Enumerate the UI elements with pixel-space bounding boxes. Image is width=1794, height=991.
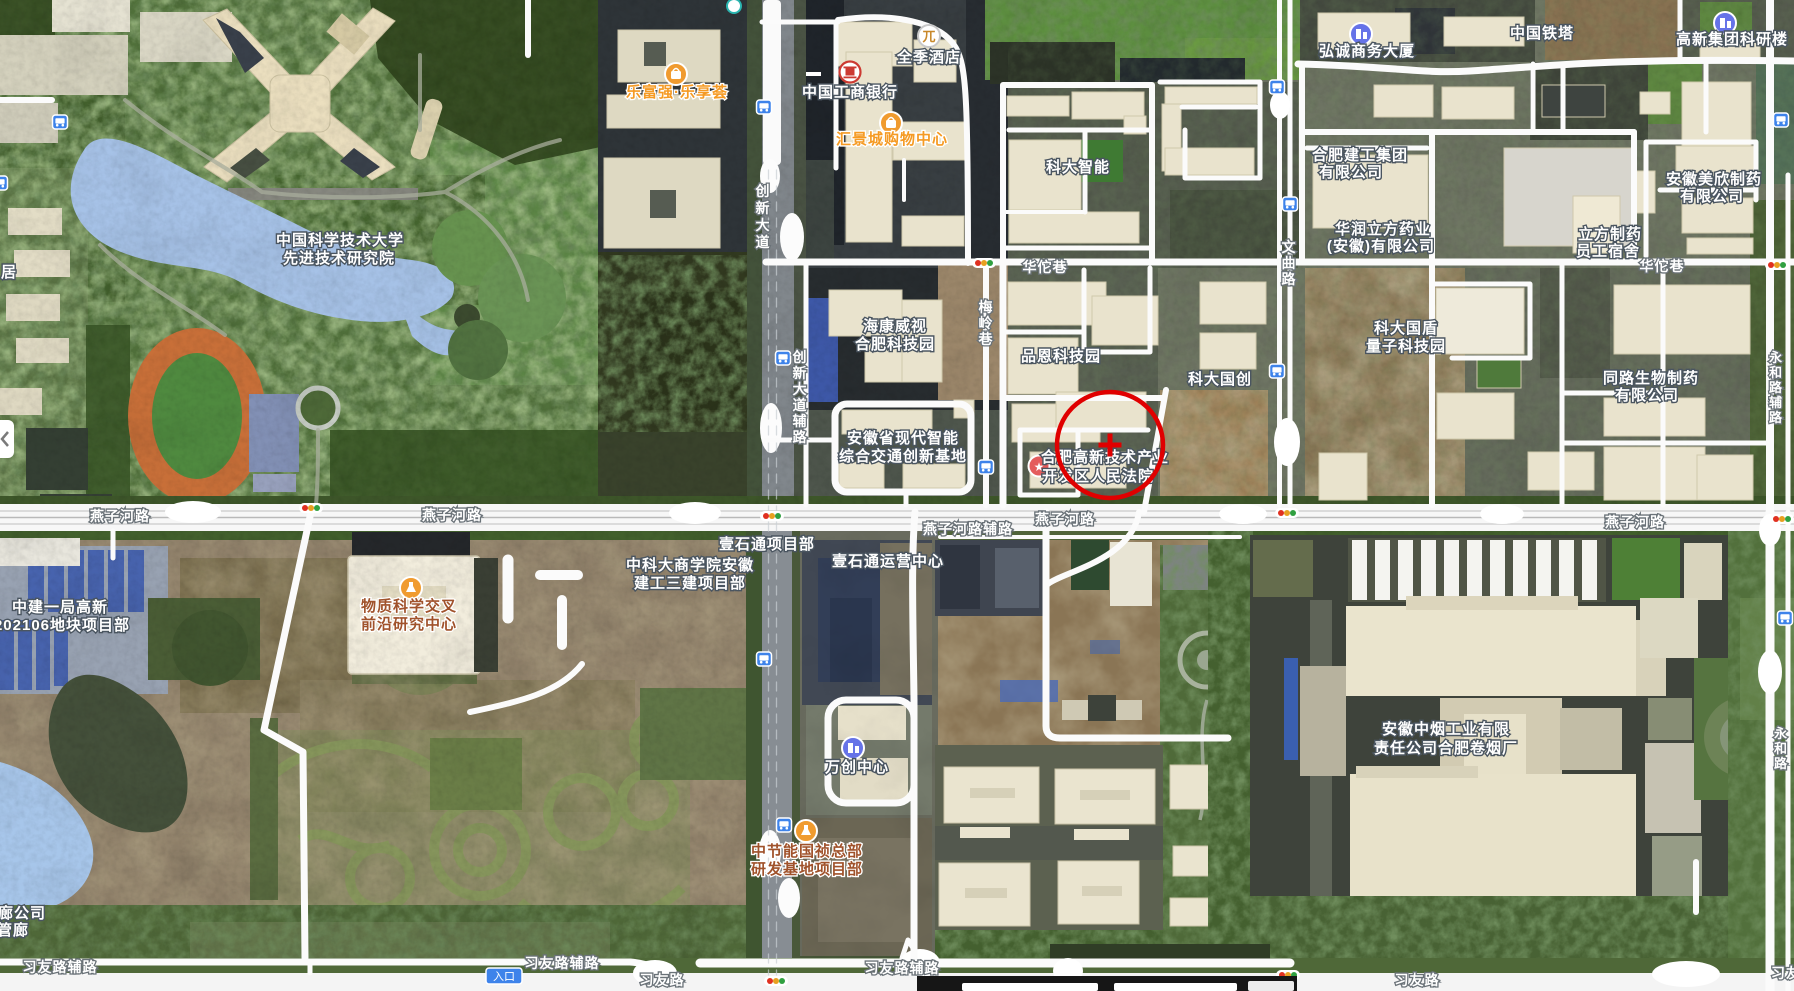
- svg-text:有限公司: 有限公司: [1615, 386, 1679, 404]
- svg-text:安徽省现代智能: 安徽省现代智能: [847, 429, 959, 447]
- svg-text:研发基地项目部: 研发基地项目部: [751, 860, 863, 878]
- svg-text:前沿研究中心: 前沿研究中心: [361, 615, 457, 633]
- svg-text:燕子河路: 燕子河路: [90, 508, 150, 524]
- svg-text:202106地块项目部: 202106地块项目部: [0, 616, 130, 634]
- svg-text:华润立方药业: 华润立方药业: [1335, 220, 1431, 238]
- svg-text:习友: 习友: [1771, 965, 1794, 981]
- svg-text:中科大商学院安徽: 中科大商学院安徽: [626, 556, 754, 574]
- svg-text:综合交通创新基地: 综合交通创新基地: [839, 447, 967, 465]
- svg-text:全季酒店: 全季酒店: [896, 48, 961, 66]
- svg-text:习友路: 习友路: [1395, 972, 1440, 988]
- svg-text:永和路辅路: 永和路辅路: [1768, 350, 1783, 425]
- svg-text:中国工商银行: 中国工商银行: [802, 83, 898, 101]
- svg-text:安徽美欣制药: 安徽美欣制药: [1666, 170, 1762, 188]
- svg-text:合肥科技园: 合肥科技园: [854, 335, 935, 353]
- svg-text:责任公司合肥卷烟厂: 责任公司合肥卷烟厂: [1374, 739, 1518, 757]
- svg-text:华佗巷: 华佗巷: [1023, 259, 1068, 275]
- svg-text:开发区人民法院: 开发区人民法院: [1042, 467, 1154, 485]
- svg-text:量子科技园: 量子科技园: [1366, 337, 1446, 355]
- svg-text:汇景城购物中心: 汇景城购物中心: [836, 130, 948, 148]
- svg-text:习友路辅路: 习友路辅路: [525, 955, 600, 971]
- svg-text:梅岭巷: 梅岭巷: [978, 299, 994, 347]
- svg-text:燕子河路: 燕子河路: [1035, 511, 1095, 527]
- svg-text:中国铁塔: 中国铁塔: [1510, 24, 1574, 42]
- svg-text:燕子河路辅路: 燕子河路辅路: [923, 521, 1013, 537]
- svg-text:科大国创: 科大国创: [1188, 370, 1252, 388]
- svg-text:文曲路: 文曲路: [1282, 239, 1297, 287]
- svg-text:华佗巷: 华佗巷: [1640, 258, 1685, 274]
- svg-text:合肥建工集团: 合肥建工集团: [1311, 146, 1408, 164]
- svg-text:弘诚商务大厦: 弘诚商务大厦: [1319, 42, 1415, 60]
- svg-text:建工三建项目部: 建工三建项目部: [634, 574, 746, 592]
- svg-text:先进技术研究院: 先进技术研究院: [283, 249, 395, 267]
- svg-text:中节能国祯总部: 中节能国祯总部: [751, 842, 863, 860]
- svg-text:(安徽)有限公司: (安徽)有限公司: [1327, 237, 1435, 255]
- svg-text:壹石通运营中心: 壹石通运营中心: [832, 552, 944, 570]
- svg-text:乐富强·乐享荟: 乐富强·乐享荟: [626, 83, 728, 101]
- svg-text:同路生物制药: 同路生物制药: [1603, 369, 1699, 387]
- svg-text:廊公司: 廊公司: [0, 904, 46, 922]
- svg-text:员工宿舍: 员工宿舍: [1576, 242, 1640, 260]
- svg-text:习友路辅路: 习友路辅路: [865, 960, 940, 976]
- svg-text:海康威视: 海康威视: [863, 317, 927, 335]
- svg-text:兀: 兀: [921, 29, 935, 44]
- svg-text:习友路辅路: 习友路辅路: [23, 959, 98, 975]
- svg-text:科大智能: 科大智能: [1046, 158, 1110, 176]
- svg-text:管廊: 管廊: [0, 921, 29, 939]
- svg-text:高新集团科研楼: 高新集团科研楼: [1676, 30, 1788, 48]
- svg-text:中建一局高新: 中建一局高新: [12, 598, 108, 616]
- svg-text:入口: 入口: [493, 971, 515, 983]
- svg-text:壹石通项目部: 壹石通项目部: [719, 535, 815, 553]
- svg-text:燕子河路: 燕子河路: [422, 507, 482, 523]
- svg-text:科大国盾: 科大国盾: [1374, 319, 1438, 337]
- svg-text:习友路: 习友路: [640, 972, 685, 988]
- svg-text:燕子河路: 燕子河路: [1605, 514, 1665, 530]
- svg-text:创新大道辅路: 创新大道辅路: [792, 349, 808, 445]
- svg-text:品恩科技园: 品恩科技园: [1021, 347, 1101, 365]
- svg-text:立方制药: 立方制药: [1578, 225, 1642, 243]
- svg-text:创新大道: 创新大道: [755, 183, 771, 250]
- svg-text:安徽中烟工业有限: 安徽中烟工业有限: [1382, 720, 1510, 738]
- svg-text:万创中心: 万创中心: [824, 758, 889, 776]
- svg-text:永和路: 永和路: [1773, 726, 1788, 771]
- svg-text:物质科学交叉: 物质科学交叉: [361, 597, 457, 615]
- svg-text:有限公司: 有限公司: [1319, 163, 1383, 181]
- svg-text:居: 居: [1, 264, 17, 281]
- svg-text:中国科学技术大学: 中国科学技术大学: [276, 231, 404, 249]
- svg-text:有限公司: 有限公司: [1680, 187, 1744, 205]
